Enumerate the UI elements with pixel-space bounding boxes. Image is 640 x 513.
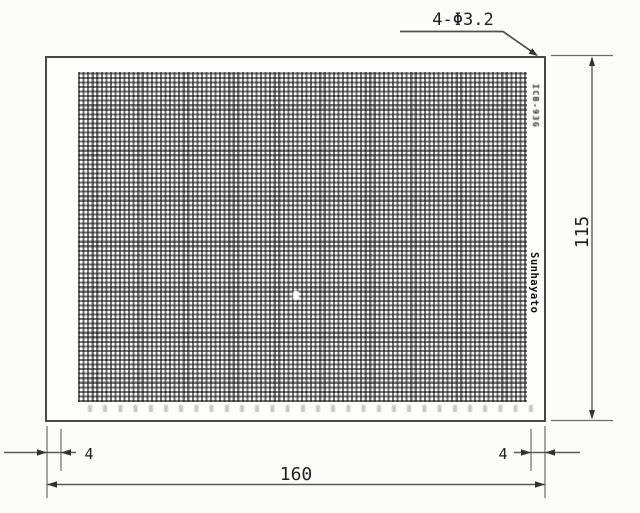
dimension-layer: 4-Φ3.2 115 4 4 <box>0 0 640 513</box>
right-margin-arrow-a <box>521 449 531 455</box>
technical-drawing-canvas: ICB-93G Sunhayato 4-Φ3.2 115 <box>0 0 640 513</box>
right-margin-arrow-b <box>545 449 555 455</box>
hole-callout-label: 4-Φ3.2 <box>432 10 493 30</box>
width-dimension-label: 160 <box>280 464 313 485</box>
width-arrow-right <box>535 481 545 487</box>
left-margin-dimension <box>4 449 76 455</box>
hole-callout-leader <box>400 32 538 57</box>
width-arrow-left <box>47 481 57 487</box>
left-margin-label: 4 <box>84 445 93 463</box>
height-dimension-label: 115 <box>572 216 593 249</box>
right-margin-label: 4 <box>498 445 507 463</box>
left-margin-arrow-b <box>61 449 71 455</box>
height-arrow-bottom <box>589 410 595 420</box>
bottom-extension-lines <box>47 426 545 498</box>
height-arrow-top <box>589 57 595 67</box>
right-margin-dimension <box>514 449 580 455</box>
left-margin-arrow-a <box>37 449 47 455</box>
